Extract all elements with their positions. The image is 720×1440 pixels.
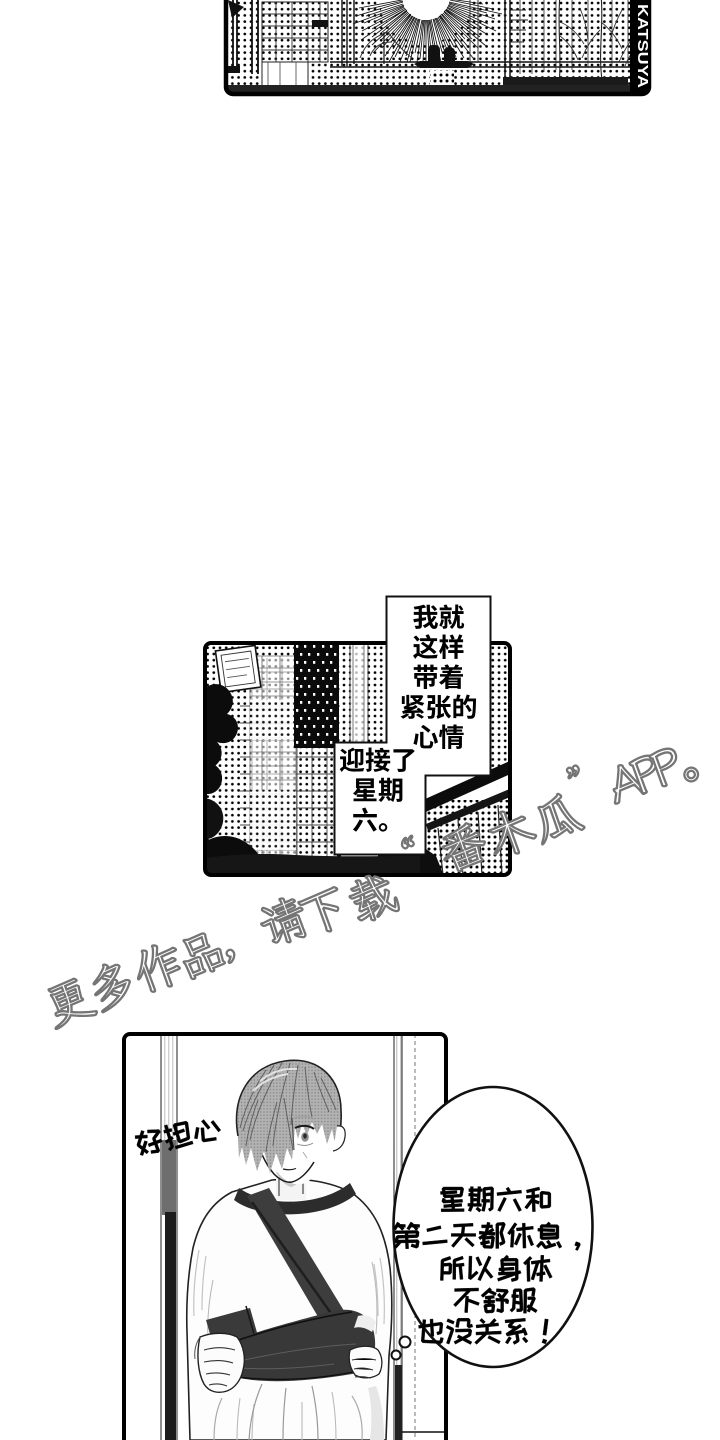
- svg-text:KATSUYA: KATSUYA: [634, 4, 650, 89]
